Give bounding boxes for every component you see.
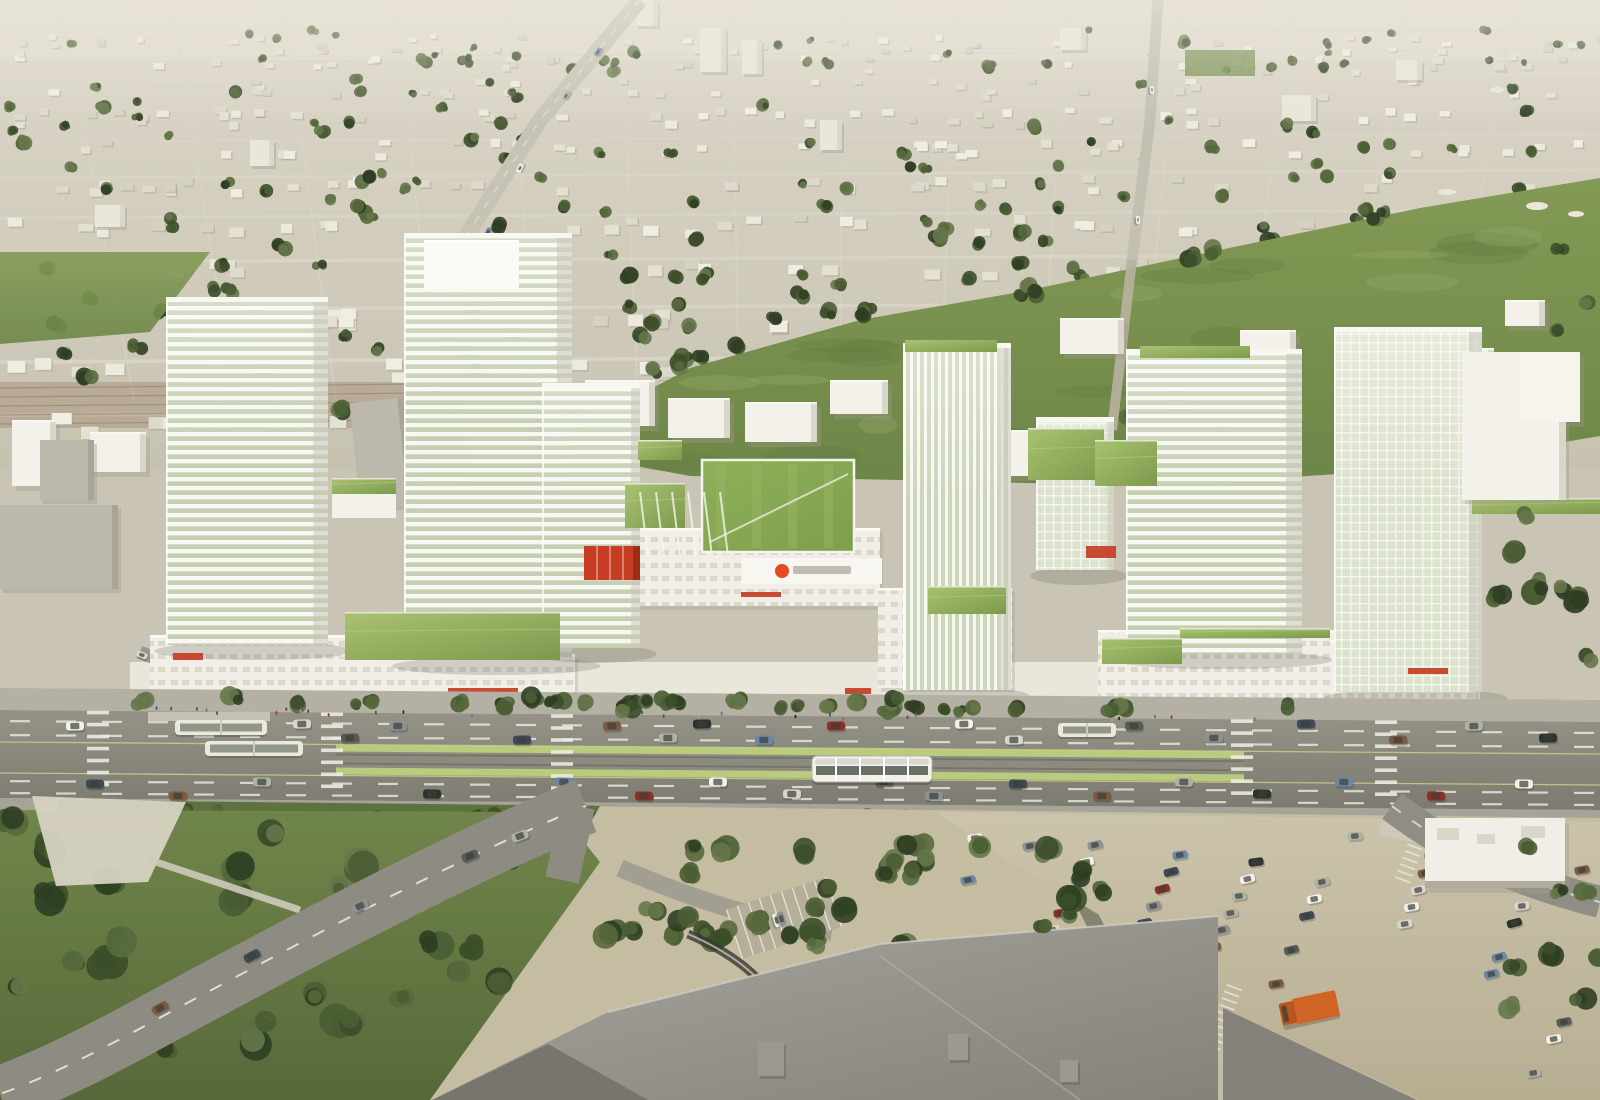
lane-dash [1436,745,1456,747]
crosswalk-bar [321,748,343,752]
tree [1218,193,1227,202]
car-glass [663,735,672,742]
street-tree [233,695,244,706]
traffic-car [1427,791,1446,802]
roof-edge [830,380,888,382]
tower-side-shade [1286,352,1302,654]
field-mottle [1474,227,1542,247]
green-roof-parapet [1180,628,1330,630]
house [605,225,619,235]
lane-dash [1206,729,1226,731]
crosswalk-bar [87,759,109,763]
house [221,151,231,159]
tree [1320,169,1334,183]
cluster-tree [1492,585,1512,605]
crosswalk-bar [551,714,573,718]
lane-dash [1528,745,1548,747]
crosswalk-bar [1375,768,1397,772]
lane-dash [700,797,720,799]
lane-dash [838,798,858,800]
traffic-car [389,721,408,732]
street-tree [1008,702,1023,717]
traffic-car [1539,733,1558,744]
house [379,140,390,146]
park-tree [463,940,484,961]
tree [1359,142,1371,154]
canopy-shade [633,546,640,580]
lane-dash [194,781,214,783]
lane-dash [1206,789,1226,791]
crosswalk-bar [87,711,109,715]
mall-roof-unit [758,1042,784,1076]
park-tree [241,1028,265,1052]
park-tree [449,960,471,982]
house [281,224,293,233]
sand-bunker [1568,211,1584,217]
house [697,145,706,151]
car-glass [1209,735,1218,742]
field-mottle [787,347,895,363]
tree [220,261,230,271]
lane-dash [10,734,30,736]
lane-dash [148,735,168,737]
tree [372,346,382,356]
tree [318,260,327,269]
house [593,316,607,326]
tree [1312,158,1323,169]
lane-dash [838,786,858,788]
tree [840,181,854,195]
pedestrian [829,713,831,717]
green-roof [928,586,1006,614]
street-tree [891,691,905,705]
lane-dash [102,793,122,795]
street-tree [796,700,805,709]
traffic-car [659,733,678,744]
park-tree [86,952,114,980]
car-glass [1431,793,1440,800]
park-tree [419,930,437,948]
car-glass [1469,723,1478,730]
crosswalk-bar [87,747,109,751]
lane-dash [102,721,122,723]
street-tree [290,695,305,710]
crosswalk-bar [1231,731,1253,735]
traffic-car [827,721,846,732]
house [81,147,90,154]
house [975,229,990,236]
house [935,141,947,148]
tree [378,170,385,177]
car-glass [607,723,616,730]
lane-dash [56,780,76,782]
tram-segment-joint [835,758,837,780]
pedestrian [403,710,405,714]
building-shade [649,380,655,426]
lawn-stripe [788,464,797,548]
lane-dash [378,783,398,785]
tree [608,250,619,261]
bus-articulation [253,741,255,756]
car-glass [427,791,436,798]
traffic-car [755,735,774,746]
car-glass [639,793,648,800]
cluster-tree [1571,591,1590,610]
traffic-car [1297,719,1316,730]
street-tree [496,699,512,715]
traffic-car [709,777,728,788]
lane-dash [148,781,168,783]
tower-parapet [542,383,640,388]
house [1090,149,1100,155]
field-mottle [1140,268,1255,284]
house [35,358,52,370]
tree [663,148,672,157]
tree [681,318,696,333]
car-glass [1013,781,1022,788]
lane-dash [1022,728,1042,730]
house [853,220,867,230]
tree [933,227,949,243]
lane-dash [562,724,582,726]
lane-dash [792,786,812,788]
tree [366,212,374,220]
lane-dash [1344,802,1364,804]
retail-sign [1408,668,1448,674]
campus-building [745,402,817,442]
crosswalk-bar [1231,755,1253,759]
traffic-car [66,721,85,732]
gray-slab-group [0,505,121,593]
annex-upper [1520,352,1580,422]
car-glass [1129,723,1138,730]
traffic-car [603,721,622,732]
car-glass [759,737,768,744]
tree [973,236,985,248]
lane-dash [1528,731,1548,733]
tree [350,199,364,213]
traffic-car [1009,779,1028,790]
tree [341,329,349,337]
tree [690,231,704,245]
lane-dash [1390,790,1410,792]
street-tree [819,700,832,713]
park-tree [34,885,65,916]
car-glass [1257,791,1266,798]
lane-dash [516,724,536,726]
street-tree [665,695,678,708]
park-tree [266,825,284,843]
park-tree [11,978,28,995]
lane-dash [286,782,306,784]
lane-dash [332,794,352,796]
house [1088,187,1099,194]
lane-dash [1022,742,1042,744]
car-glass [173,793,182,800]
mid-tree [677,906,699,928]
house [284,151,295,159]
building-shade [1539,300,1545,326]
tree [796,269,805,278]
tree [645,361,660,376]
mid-tree [593,923,618,948]
tower-side-shade [313,300,328,645]
car-glass [1351,833,1359,839]
house [491,139,501,147]
apartment-slab [0,505,118,589]
house [201,224,214,232]
house [570,360,587,370]
tree [101,184,112,195]
house [163,182,175,191]
cluster-tree [1060,893,1076,909]
slab-shade [88,440,94,500]
tram-window-band [816,766,928,775]
edge-tree [675,361,685,371]
traffic-car [513,735,532,746]
traffic-car [341,733,360,744]
lane-dash [930,727,950,729]
street-tree [544,698,554,708]
crosswalk-bar [551,738,573,742]
house [78,224,93,231]
pedestrian [285,707,287,711]
tree [975,200,986,211]
crosswalk-bar [1231,719,1253,723]
parked-car [1347,831,1364,843]
car-glass [713,779,722,786]
pedestrian [375,711,377,715]
tree [601,206,612,217]
bus [1058,723,1116,739]
tree [799,181,806,188]
lane-dash [1436,731,1456,733]
tree [1526,146,1536,156]
pedestrian [328,713,330,717]
lane-dash [1482,791,1502,793]
tree [538,173,547,182]
lane-dash [654,725,674,727]
tower-sheen [166,300,328,455]
lane-dash [792,726,812,728]
mall-logo-wordmark [793,566,851,574]
green-roof [1095,440,1157,486]
traffic-car [1389,735,1408,746]
tree [962,271,977,286]
lane-dash [470,724,490,726]
green-roof [1028,428,1104,480]
crosswalk-bar [1231,767,1253,771]
park-tree [64,952,84,972]
pedestrian [156,706,158,710]
pedestrian [300,709,302,713]
house [643,226,658,236]
house [1107,143,1118,151]
rendering-scene [0,0,1600,1100]
house [557,187,568,195]
lane-dash [378,795,398,797]
traffic-car [253,777,272,788]
lane-dash [286,794,306,796]
pedestrian [1118,717,1120,721]
tree [1383,138,1395,150]
crosswalk-bar [87,735,109,739]
lane-dash [102,781,122,783]
house [287,184,299,191]
lawn-stripe [824,464,833,548]
crosswalk-bar [87,723,109,727]
lane-dash [746,786,766,788]
tower-green-cap [1140,346,1250,358]
tree [897,150,906,159]
pedestrian [721,712,723,716]
lane-dash [884,799,904,801]
car-glass [1009,737,1018,744]
street-tree [1281,702,1295,716]
tree [1447,144,1455,152]
green-roof [332,478,396,494]
field-mottle [679,375,759,390]
red-entry-canopy [584,546,640,580]
pedestrian [216,711,218,715]
top-haze [0,0,1600,130]
lane-dash [930,741,950,743]
traffic-car [1005,735,1024,746]
mid-tree [805,897,825,917]
tree [922,217,933,228]
traffic-car [693,719,712,730]
house [917,143,928,151]
edge-tree [855,309,867,321]
pedestrian [307,709,309,713]
tower-1 [155,297,356,660]
lane-dash [1160,729,1180,731]
mid-tree [711,843,731,863]
house [453,138,462,145]
house [471,181,484,189]
mid-tree [648,902,664,918]
pedestrian [1171,715,1173,719]
house [935,177,946,185]
car-glass [1543,735,1552,742]
lane-dash [700,739,720,741]
lane-dash [838,740,858,742]
sand-bunker [1438,189,1456,195]
lane-dash [516,796,536,798]
house [725,182,738,190]
house [449,182,460,189]
traffic-car [1515,779,1534,790]
tower-sheen [1334,330,1482,493]
lane-dash [10,720,30,722]
campus-building [668,398,730,438]
crosswalk-bar [1375,792,1397,796]
apartment-slab [40,440,94,500]
tree [1067,261,1080,274]
house [230,268,244,278]
crosswalk-bar [1375,732,1397,736]
mechanical-penthouse [424,240,519,288]
tree [559,200,571,212]
lane-dash [1528,803,1548,805]
car-glass [345,735,354,742]
lane-dash [1298,744,1318,746]
lane-dash [1528,791,1548,793]
retail-sign [741,592,781,597]
park-tree [341,1010,360,1029]
lane-dash [1160,789,1180,791]
tree [671,299,683,311]
house [1289,152,1301,159]
lane-dash [1298,790,1318,792]
lane-dash [470,796,490,798]
tree [334,400,351,417]
tree [1038,235,1049,246]
lane-dash [608,785,628,787]
house [626,217,637,225]
house [1503,149,1514,156]
cluster-tree [1523,841,1537,855]
lane-dash [1206,801,1226,803]
street-tree [1100,704,1112,716]
house [822,265,838,275]
car-glass [1339,779,1348,786]
crosswalk-bar [551,762,573,766]
lane-dash [1298,802,1318,804]
tower-4 [895,340,1029,705]
green-roof-parapet [345,612,560,614]
roof-edge [1505,300,1545,302]
tree [1012,259,1024,271]
lane-dash [240,794,260,796]
house [973,182,985,191]
pedestrian [663,714,665,718]
lane-dash [976,799,996,801]
house [151,222,165,231]
house [101,140,112,146]
house [375,153,386,160]
pedestrian [635,712,637,716]
green-roof [1102,638,1182,664]
house [993,179,1006,187]
tree [85,370,99,384]
lane-dash [1068,742,1088,744]
lane-dash [424,737,444,739]
retail-sign [173,653,203,660]
house [1041,139,1052,147]
traffic-car [293,719,312,730]
car-glass [1097,793,1106,800]
crosswalk-bar [1375,720,1397,724]
mall-roof-unit [948,1034,968,1060]
park-tree [258,1018,272,1032]
edge-tree [1027,284,1042,299]
tram-segment-joint [883,758,885,780]
traffic-car [1125,721,1144,732]
tree [17,134,27,144]
house [1459,150,1468,156]
tree [1211,145,1220,154]
house [965,150,977,157]
roof-edge [90,432,146,434]
house [142,186,155,192]
crosswalk-bar [1231,779,1253,783]
tree [827,310,836,319]
tree [621,267,638,284]
house [326,221,338,231]
lane-dash [470,784,490,786]
tree [1292,174,1300,182]
